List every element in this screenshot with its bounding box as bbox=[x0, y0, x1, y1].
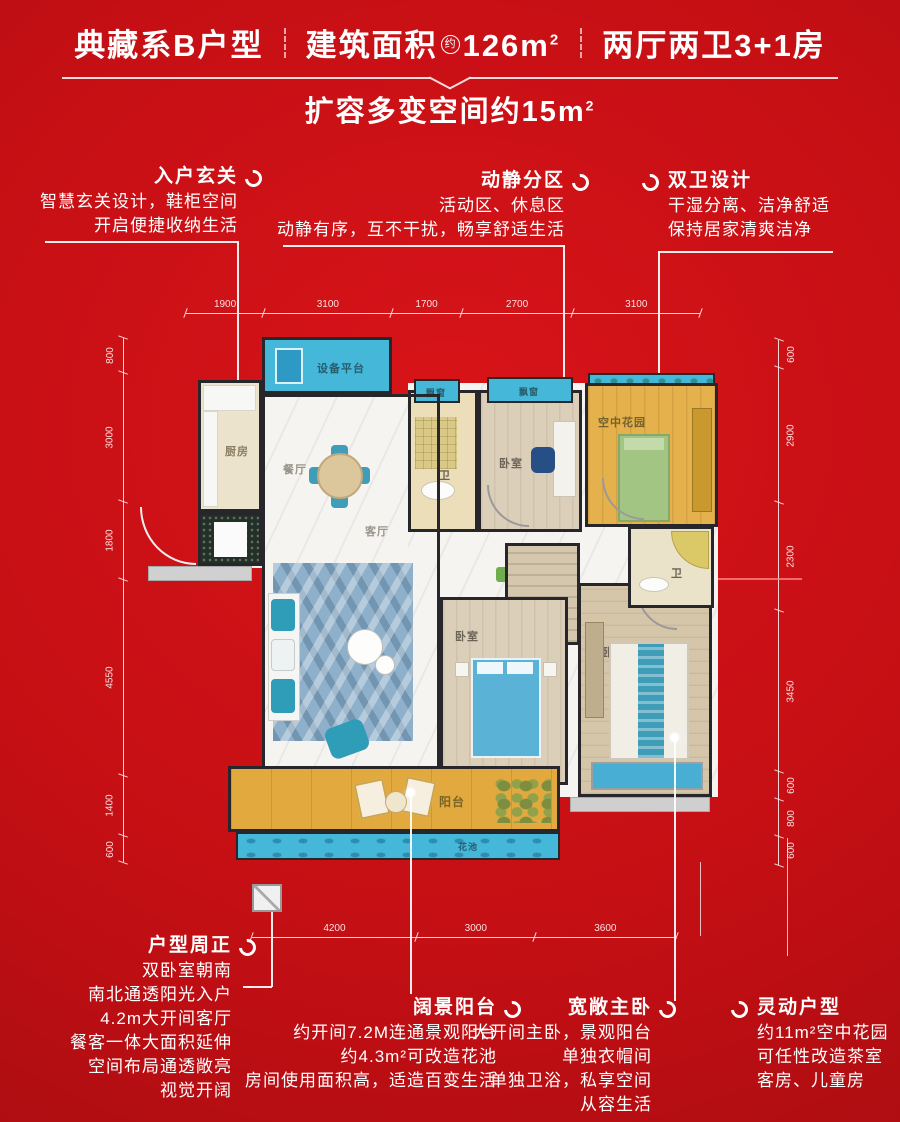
callout-line: 单独卫浴，私享空间 bbox=[490, 1071, 652, 1090]
desk-chair bbox=[531, 447, 555, 473]
leader-master-dot bbox=[670, 733, 679, 742]
circle-marker-icon bbox=[639, 171, 663, 195]
desk bbox=[553, 421, 576, 497]
room-label-dining: 餐厅 bbox=[283, 461, 307, 477]
dim-seg: 3100 bbox=[264, 290, 391, 314]
callout-line: 可任性改造茶室 bbox=[757, 1047, 883, 1066]
floorplan: 设备平台 厨房 卫 飘窗 卧室 飘窗 bbox=[190, 335, 730, 862]
dim-seg: 2900 bbox=[778, 368, 804, 503]
room-balcony: 阳台 bbox=[228, 766, 560, 832]
circle-marker-icon bbox=[242, 167, 266, 191]
dim-seg: 2700 bbox=[462, 290, 573, 314]
dim-seg: 3100 bbox=[573, 290, 700, 314]
door-arc bbox=[602, 478, 644, 520]
leader-balcony-v bbox=[410, 792, 412, 994]
balcony-table bbox=[385, 791, 407, 813]
area-text: 建筑面积约126m2 bbox=[306, 20, 561, 65]
callout-line: 大开间主卧，景观阳台 bbox=[472, 1023, 652, 1042]
leader-entry-h bbox=[45, 241, 238, 243]
master-couch bbox=[591, 762, 703, 790]
room-label-bath-master: 卫 bbox=[671, 565, 683, 581]
leader-squared-h bbox=[243, 986, 272, 988]
callout-title: 灵动户型 bbox=[757, 995, 841, 1021]
garden-bed-pillow bbox=[624, 438, 664, 450]
entry-step bbox=[148, 566, 252, 581]
subtitle-text: 扩容多变空间约15m bbox=[305, 96, 586, 128]
dim-label: 3450 bbox=[786, 680, 797, 702]
callout-double-bath: 双卫设计 干湿分离、洁净舒适 保持居家清爽洁净 bbox=[668, 168, 878, 242]
dim-seg: 3000 bbox=[98, 373, 124, 502]
dim-seg: 1900 bbox=[186, 290, 264, 314]
dim-seg: 4200 bbox=[252, 914, 417, 938]
callout-entry-hall: 入户玄关 智慧玄关设计，鞋柜空间 开启便捷收纳生活 bbox=[0, 164, 238, 238]
dim-label: 3100 bbox=[317, 299, 339, 313]
dim-seg: 3000 bbox=[417, 914, 535, 938]
dim-seg: 800 bbox=[778, 800, 804, 837]
circle-marker-icon bbox=[656, 998, 680, 1022]
callout-title-text: 宽敞主卧 bbox=[568, 997, 652, 1018]
circle-marker-icon bbox=[569, 171, 593, 195]
nightstand bbox=[543, 662, 557, 677]
dim-seg: 1700 bbox=[392, 290, 462, 314]
room-label-kitchen: 厨房 bbox=[225, 443, 249, 459]
room-label-bath-top: 卫 bbox=[439, 467, 451, 483]
entry-door-arc bbox=[140, 507, 196, 565]
room-label-bedroom-mid: 卧室 bbox=[455, 628, 479, 644]
callout-title-text: 户型周正 bbox=[148, 935, 232, 956]
room-equipment-platform: 设备平台 bbox=[262, 337, 392, 394]
sofa-cushion bbox=[271, 639, 295, 671]
dim-seg: 800 bbox=[98, 338, 124, 373]
room-bedroom-top: 卧室 bbox=[478, 390, 582, 532]
circle-marker-icon bbox=[236, 936, 260, 960]
callout-title-text: 灵动户型 bbox=[757, 997, 841, 1018]
callout-line: 开启便捷收纳生活 bbox=[94, 216, 238, 235]
callout-line: 智慧玄关设计，鞋柜空间 bbox=[40, 192, 238, 211]
approx-circle-icon: 约 bbox=[441, 35, 460, 54]
divider-line-left bbox=[62, 77, 430, 79]
callout-line: 空间布局通透敞亮 bbox=[88, 1057, 232, 1076]
callout-line: 视觉开阔 bbox=[160, 1081, 232, 1100]
dim-label: 1900 bbox=[214, 299, 236, 313]
dim-label: 3000 bbox=[465, 923, 487, 937]
callout-title: 动静分区 bbox=[481, 168, 565, 194]
entry-door-symbol bbox=[252, 884, 282, 912]
callout-title: 户型周正 bbox=[148, 933, 232, 959]
sofa-cushion bbox=[271, 679, 295, 713]
room-kitchen: 厨房 bbox=[198, 380, 262, 512]
dim-label: 600 bbox=[786, 346, 797, 363]
series-title: 典藏系B户型 bbox=[74, 20, 263, 65]
flower-bed: 花池 bbox=[236, 832, 560, 860]
leader-squared-v bbox=[271, 912, 273, 987]
dim-label: 1800 bbox=[105, 530, 116, 552]
dim-label: 3600 bbox=[594, 923, 616, 937]
dim-rail-right: 600 2900 2300 3450 600 800 600 bbox=[778, 340, 804, 865]
callout-line: 动静有序，互不干扰，畅享舒适生活 bbox=[277, 220, 565, 239]
sofa-cushion bbox=[271, 599, 295, 631]
dim-seg: 600 bbox=[778, 772, 804, 800]
entry-tile bbox=[214, 522, 247, 557]
nightstand bbox=[455, 662, 469, 677]
dim-seg: 1800 bbox=[98, 502, 124, 580]
room-master-bedroom: 主卧 bbox=[578, 583, 712, 797]
shower-corner bbox=[671, 531, 709, 569]
dim-label: 2300 bbox=[786, 546, 797, 568]
callout-master-suite: 宽敞主卧 大开间主卧，景观阳台 单独衣帽间 单独卫浴，私享空间 从容生活 bbox=[422, 995, 652, 1117]
room-sky-garden: 空中花园 bbox=[585, 383, 718, 527]
bay-window-2: 飘窗 bbox=[487, 377, 573, 403]
dim-label: 2900 bbox=[786, 425, 797, 447]
dim-label: 600 bbox=[786, 777, 797, 794]
room-bath-master: 卫 bbox=[628, 526, 714, 608]
dining-area: 餐厅 客厅 bbox=[262, 394, 440, 770]
dim-label: 2700 bbox=[506, 299, 528, 313]
dim-rail-bottom: 4200 3000 3600 bbox=[252, 914, 676, 938]
room-label-balcony: 阳台 bbox=[439, 793, 465, 810]
subtitle: 扩容多变空间约15m2 bbox=[0, 88, 900, 130]
room-label-living: 客厅 bbox=[365, 523, 389, 539]
dim-seg: 600 bbox=[778, 837, 804, 865]
callout-line: 客房、儿童房 bbox=[757, 1071, 865, 1090]
callout-flexible-layout: 灵动户型 约11m²空中花园 可任性改造茶室 客房、儿童房 bbox=[757, 995, 897, 1093]
dim-seg: 1400 bbox=[98, 776, 124, 836]
room-label-bay-window-2: 飘窗 bbox=[519, 385, 539, 398]
subtitle-sup: 2 bbox=[586, 97, 596, 113]
dim-label: 600 bbox=[105, 841, 116, 858]
callout-line: 约11m²空中花园 bbox=[757, 1023, 888, 1042]
dim-label: 1400 bbox=[105, 795, 116, 817]
garden-cabinet bbox=[692, 408, 712, 512]
washing-machine bbox=[275, 348, 303, 384]
callout-line: 4.2m大开间客厅 bbox=[100, 1009, 232, 1028]
room-label-bedroom-top: 卧室 bbox=[499, 455, 523, 471]
callout-line: 从容生活 bbox=[580, 1095, 652, 1114]
dim-seg: 2300 bbox=[778, 503, 804, 610]
wardrobe bbox=[585, 622, 604, 718]
callout-line: 南北通透阳光入户 bbox=[88, 985, 232, 1004]
room-label-sky-garden: 空中花园 bbox=[598, 414, 646, 430]
dim-seg: 3450 bbox=[778, 611, 804, 772]
header: 典藏系B户型 建筑面积约126m2 两厅两卫3+1房 bbox=[0, 20, 900, 65]
circle-marker-icon bbox=[728, 998, 752, 1022]
dim-label: 3000 bbox=[105, 426, 116, 448]
rooms-label: 两厅两卫3+1房 bbox=[602, 20, 826, 65]
dim-extension-line bbox=[787, 838, 788, 956]
master-balcony-step bbox=[570, 797, 710, 812]
callout-line: 干湿分离、洁净舒适 bbox=[668, 196, 830, 215]
bed-pillow bbox=[477, 662, 503, 674]
callout-squared-layout: 户型周正 双卧室朝南 南北通透阳光入户 4.2m大开间客厅 餐客一体大面积延伸 … bbox=[2, 933, 232, 1103]
leader-bath-h bbox=[658, 251, 833, 253]
callout-zoning: 动静分区 活动区、休息区 动静有序，互不干扰，畅享舒适生活 bbox=[265, 168, 565, 242]
area-value: 126m bbox=[463, 28, 550, 63]
dim-seg: 600 bbox=[778, 340, 804, 368]
callout-line: 双卧室朝南 bbox=[142, 961, 232, 980]
leader-zoning-h bbox=[283, 245, 565, 247]
master-bed bbox=[609, 642, 689, 760]
toilet bbox=[639, 577, 669, 592]
dim-label: 4200 bbox=[323, 923, 345, 937]
area-sup: 2 bbox=[550, 32, 560, 49]
dim-rail-left: 800 3000 1800 4550 1400 600 bbox=[98, 338, 124, 862]
callout-title: 宽敞主卧 bbox=[568, 995, 652, 1021]
callout-title-text: 入户玄关 bbox=[154, 166, 238, 187]
divider-line-right bbox=[470, 77, 838, 79]
callout-line: 餐客一体大面积延伸 bbox=[70, 1033, 232, 1052]
callout-title-text: 双卫设计 bbox=[668, 170, 752, 191]
leader-flexible-h bbox=[718, 578, 802, 580]
room-label-flower-bed: 花池 bbox=[458, 840, 478, 853]
leader-balcony-dot bbox=[406, 788, 415, 797]
callout-line: 活动区、休息区 bbox=[439, 196, 565, 215]
header-divider bbox=[580, 28, 582, 58]
dim-seg: 600 bbox=[98, 836, 124, 862]
leader-master-v bbox=[674, 737, 676, 1001]
callout-line: 保持居家清爽洁净 bbox=[668, 220, 812, 239]
dim-seg: 4550 bbox=[98, 580, 124, 776]
dim-extension-line bbox=[700, 862, 701, 936]
callout-title-text: 动静分区 bbox=[481, 170, 565, 191]
header-divider bbox=[284, 28, 286, 58]
dim-label: 1700 bbox=[415, 299, 437, 313]
dining-table bbox=[317, 453, 363, 499]
area-label: 建筑面积 bbox=[306, 28, 438, 63]
room-bedroom-mid: 卧室 bbox=[440, 597, 568, 785]
poster: 典藏系B户型 建筑面积约126m2 两厅两卫3+1房 扩容多变空间约15m2 入… bbox=[0, 0, 900, 1122]
balcony-plants bbox=[493, 777, 551, 823]
dim-label: 4550 bbox=[105, 666, 116, 688]
bed-pillow bbox=[507, 662, 533, 674]
callout-title: 双卫设计 bbox=[668, 168, 752, 194]
dim-label: 3100 bbox=[625, 299, 647, 313]
dim-label: 800 bbox=[105, 347, 116, 364]
door-arc bbox=[487, 485, 529, 527]
dim-seg: 3600 bbox=[535, 914, 676, 938]
kitchen-counter bbox=[203, 385, 256, 411]
callout-line: 单独衣帽间 bbox=[562, 1047, 652, 1066]
dim-label: 800 bbox=[786, 810, 797, 827]
kitchen-counter bbox=[203, 411, 218, 507]
room-entry bbox=[198, 512, 262, 566]
bed-runner bbox=[638, 644, 664, 758]
room-label-equipment-platform: 设备平台 bbox=[317, 360, 365, 376]
dim-rail-top: 1900 3100 1700 2700 3100 bbox=[186, 290, 700, 314]
coffee-table-small bbox=[375, 655, 395, 675]
callout-title: 入户玄关 bbox=[154, 164, 238, 190]
